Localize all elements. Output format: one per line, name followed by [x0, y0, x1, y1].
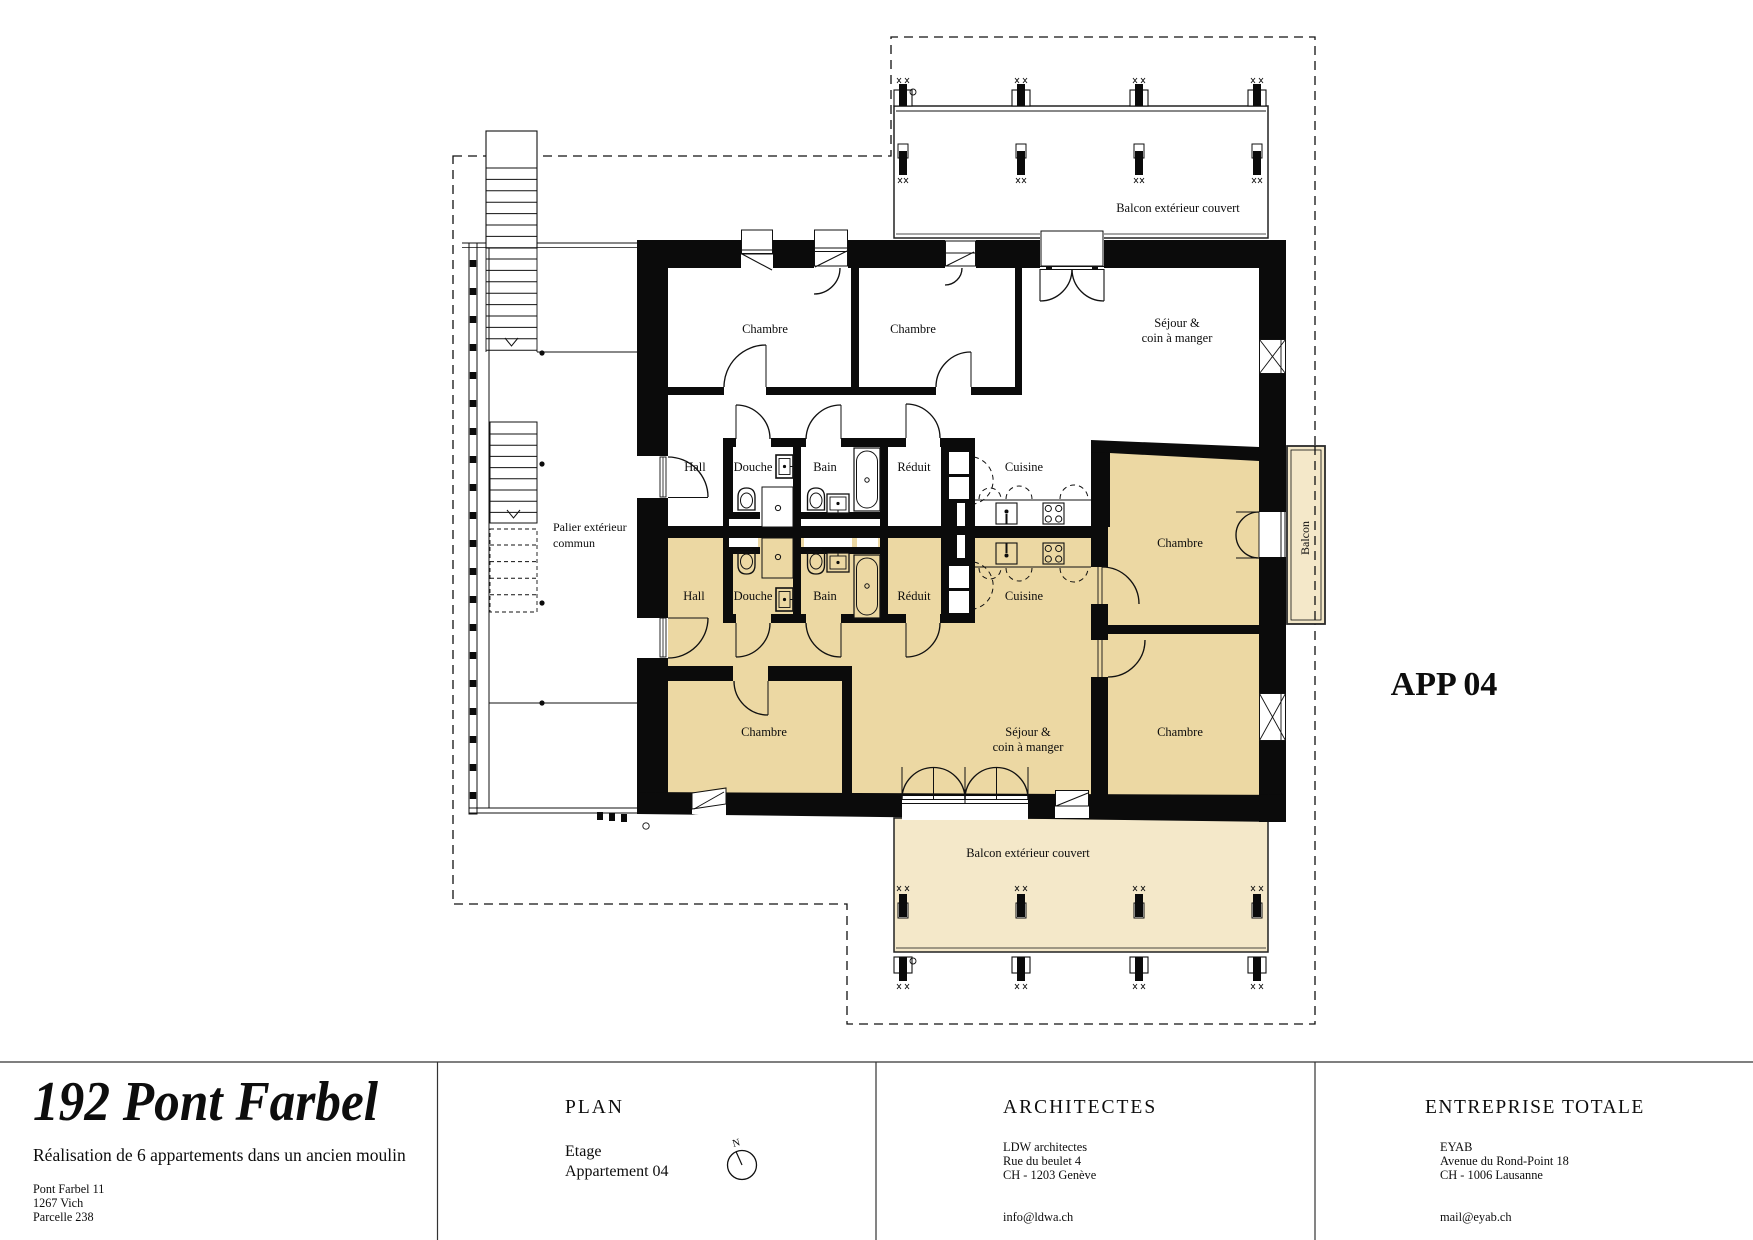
svg-text:coin à manger: coin à manger	[993, 740, 1065, 754]
svg-text:Hall: Hall	[684, 460, 706, 474]
svg-text:Séjour &: Séjour &	[1154, 316, 1200, 330]
svg-text:Hall: Hall	[683, 589, 705, 603]
svg-text:ENTREPRISE TOTALE: ENTREPRISE TOTALE	[1425, 1097, 1645, 1118]
svg-text:192 Pont Farbel: 192 Pont Farbel	[33, 1071, 378, 1133]
svg-text:Chambre: Chambre	[1157, 536, 1203, 550]
svg-text:Palier extérieur: Palier extérieur	[553, 520, 627, 534]
svg-text:PLAN: PLAN	[565, 1097, 624, 1118]
svg-text:Bain: Bain	[813, 589, 837, 603]
svg-text:LDW architectes: LDW architectes	[1003, 1140, 1087, 1154]
svg-text:Chambre: Chambre	[1157, 725, 1203, 739]
svg-text:Parcelle 238: Parcelle 238	[33, 1210, 94, 1224]
svg-text:Chambre: Chambre	[742, 322, 788, 336]
svg-text:Cuisine: Cuisine	[1005, 589, 1044, 603]
svg-text:Balcon extérieur couvert: Balcon extérieur couvert	[1116, 201, 1240, 215]
svg-text:Balcon extérieur couvert: Balcon extérieur couvert	[966, 846, 1090, 860]
svg-text:Avenue du Rond-Point 18: Avenue du Rond-Point 18	[1440, 1154, 1569, 1168]
svg-text:EYAB: EYAB	[1440, 1140, 1472, 1154]
svg-text:coin à manger: coin à manger	[1142, 331, 1214, 345]
svg-text:Chambre: Chambre	[890, 322, 936, 336]
svg-text:Réduit: Réduit	[897, 589, 931, 603]
svg-text:Séjour &: Séjour &	[1005, 725, 1051, 739]
svg-text:Pont Farbel 11: Pont Farbel 11	[33, 1182, 104, 1196]
svg-text:CH - 1006 Lausanne: CH - 1006 Lausanne	[1440, 1168, 1543, 1182]
svg-text:Réalisation de 6 appartements: Réalisation de 6 appartements dans un an…	[33, 1145, 406, 1165]
svg-text:commun: commun	[553, 536, 595, 550]
svg-text:info@ldwa.ch: info@ldwa.ch	[1003, 1210, 1074, 1224]
svg-text:mail@eyab.ch: mail@eyab.ch	[1440, 1210, 1512, 1224]
svg-text:Etage: Etage	[565, 1143, 601, 1160]
svg-text:Balcon: Balcon	[1298, 521, 1312, 555]
svg-text:APP 04: APP 04	[1391, 666, 1498, 703]
svg-text:Bain: Bain	[813, 460, 837, 474]
svg-text:Douche: Douche	[734, 589, 773, 603]
svg-text:Cuisine: Cuisine	[1005, 460, 1044, 474]
svg-text:Chambre: Chambre	[741, 725, 787, 739]
svg-text:ARCHITECTES: ARCHITECTES	[1003, 1097, 1157, 1118]
svg-text:Réduit: Réduit	[897, 460, 931, 474]
svg-text:Douche: Douche	[734, 460, 773, 474]
svg-text:Rue du beulet 4: Rue du beulet 4	[1003, 1154, 1081, 1168]
svg-text:Appartement 04: Appartement 04	[565, 1163, 669, 1180]
svg-text:CH - 1203 Genève: CH - 1203 Genève	[1003, 1168, 1097, 1182]
svg-text:1267 Vich: 1267 Vich	[33, 1196, 83, 1210]
